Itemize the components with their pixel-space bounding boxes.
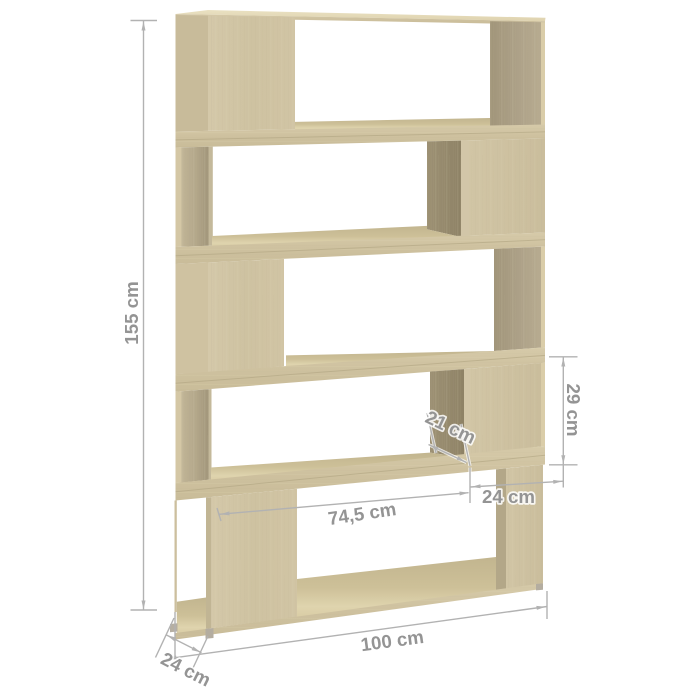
svg-text:29 cm: 29 cm <box>563 384 584 437</box>
svg-text:155 cm: 155 cm <box>121 281 142 344</box>
svg-text:24 cm: 24 cm <box>482 486 535 507</box>
